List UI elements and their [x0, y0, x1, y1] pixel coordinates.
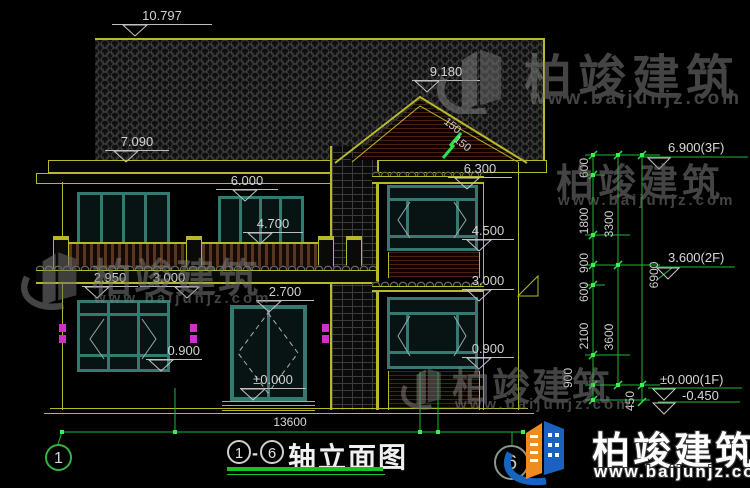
title-dash: - — [252, 443, 258, 464]
level-1f-label: ±0.000(1F) — [660, 372, 724, 387]
watermark-url: www.baijunjz.com — [94, 290, 271, 307]
title-underline-thin — [227, 474, 385, 475]
watermark-building-icon — [428, 42, 520, 114]
chain-dim: 3300 — [602, 211, 616, 238]
watermark-url: www.baijunjz.com — [558, 192, 735, 209]
watermark-building-icon — [396, 356, 452, 416]
title-underline-thick — [227, 467, 383, 471]
chain-dim: 1800 — [577, 208, 591, 235]
chain-dim: 900 — [577, 253, 591, 273]
watermark-building-icon — [14, 244, 92, 310]
dim-label: 7.090 — [105, 135, 169, 151]
title-axis-from-bubble: 1 — [227, 440, 251, 464]
axis-number: 1 — [54, 450, 63, 467]
dim-label: 10.797 — [112, 9, 212, 25]
dim-eave-wing: 6.300 — [448, 162, 512, 190]
level-2f-label: 3.600(2F) — [668, 250, 724, 265]
dim-4700: 4.700 — [243, 217, 303, 245]
dim-label: 0.900 — [146, 344, 202, 360]
elevation-drawing-canvas: 10.797 7.090 9.180 6.300 6.000 4.700 4.5… — [0, 0, 750, 488]
dim-ridge-main: 10.797 — [112, 9, 212, 37]
elevation-marker-icon — [466, 239, 492, 252]
dim-3000-wing: 3.000 — [462, 274, 514, 302]
elevation-marker-icon — [466, 289, 492, 302]
elevation-marker-icon — [247, 232, 273, 245]
title-axis-to-bubble: 6 — [260, 440, 284, 464]
axis-bubble-1: 1 — [45, 444, 72, 471]
chain-dim: 2100 — [577, 323, 591, 350]
dim-6000: 6.000 — [216, 174, 278, 202]
dim-label: 4.500 — [462, 224, 514, 240]
elevation-marker-icon — [454, 177, 480, 190]
chain-dim: 600 — [577, 282, 591, 302]
dim-0900-left: 0.900 — [146, 344, 202, 372]
dim-label: 4.700 — [243, 217, 303, 233]
chain-dim: 3600 — [602, 324, 616, 351]
title-axis-from: 1 — [235, 445, 243, 462]
dim-label: 3.000 — [462, 274, 514, 290]
elevation-marker-icon — [148, 359, 174, 372]
footer-logo-url: www.baijunjz.com — [594, 462, 750, 482]
dim-label: 6.000 — [216, 174, 278, 190]
watermark-url: www.baijunjz.com — [530, 88, 742, 110]
elevation-marker-icon — [122, 24, 148, 37]
overall-width-dim: 13600 — [262, 415, 318, 429]
elevation-marker-icon — [240, 388, 266, 401]
title-axis-to: 6 — [268, 445, 276, 462]
dim-label: ±0.000 — [240, 373, 306, 389]
elevation-marker-icon — [232, 189, 258, 202]
dim-label: 6.300 — [448, 162, 512, 178]
elevation-marker-icon — [113, 150, 139, 163]
dim-zero: ±0.000 — [240, 373, 306, 401]
logo-building-icon — [492, 415, 592, 487]
dim-eave-main: 7.090 — [105, 135, 169, 163]
dim-4500: 4.500 — [462, 224, 514, 252]
watermark-url: www.baijunjz.com — [455, 396, 632, 413]
level-foundation-label: -0.450 — [682, 388, 719, 403]
chain-dim: 6900 — [647, 262, 661, 289]
